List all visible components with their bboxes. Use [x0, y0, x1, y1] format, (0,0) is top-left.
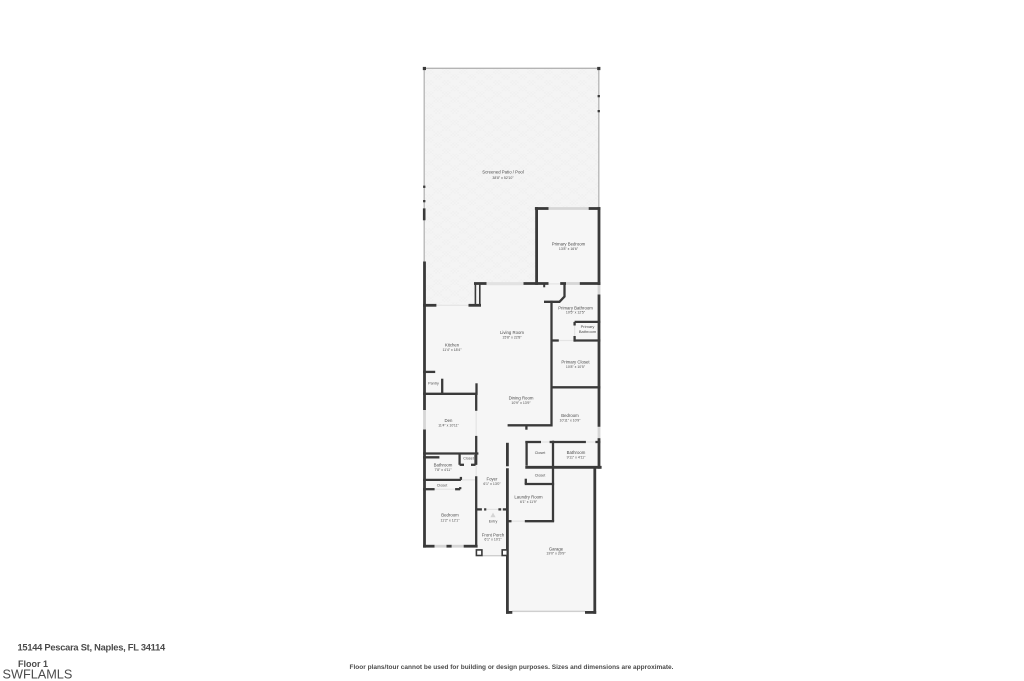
svg-text:Bathroom: Bathroom	[434, 463, 453, 468]
svg-text:6'1" x 10'1": 6'1" x 10'1"	[484, 538, 502, 542]
svg-text:10'11" x 10'9": 10'11" x 10'9"	[560, 419, 582, 423]
svg-text:Dining Room: Dining Room	[509, 396, 534, 401]
svg-text:Closet: Closet	[463, 457, 473, 461]
svg-text:15144 Pescara St, Naples, FL 3: 15144 Pescara St, Naples, FL 34114	[18, 643, 166, 653]
svg-text:10'5" x 12'5": 10'5" x 12'5"	[566, 311, 586, 315]
svg-text:SWFLAMLS: SWFLAMLS	[3, 668, 73, 681]
svg-text:11'2" x 12'1": 11'2" x 12'1"	[441, 519, 461, 523]
svg-text:Primary Closet: Primary Closet	[561, 360, 590, 365]
svg-text:15'8" x 22'8": 15'8" x 22'8"	[502, 336, 522, 340]
svg-text:38'8" x 52'10": 38'8" x 52'10"	[492, 176, 514, 180]
svg-text:Bathroom: Bathroom	[579, 329, 597, 334]
svg-text:Screened Patio / Pool: Screened Patio / Pool	[482, 170, 524, 175]
svg-text:6'1" x 13'0": 6'1" x 13'0"	[483, 482, 501, 486]
svg-text:Primary Bedroom: Primary Bedroom	[552, 242, 586, 247]
svg-text:10'8" x 10'5": 10'8" x 10'5"	[566, 365, 586, 369]
svg-text:13'8" x 16'6": 13'8" x 16'6"	[559, 247, 579, 251]
svg-text:19'0" x 20'9": 19'0" x 20'9"	[546, 552, 566, 556]
svg-text:Living Room: Living Room	[500, 330, 524, 335]
svg-text:Bathroom: Bathroom	[567, 450, 586, 455]
svg-text:Entry: Entry	[489, 520, 498, 524]
svg-text:11'4" x 18'4": 11'4" x 18'4"	[443, 348, 463, 352]
svg-text:Kitchen: Kitchen	[445, 343, 460, 348]
svg-text:10'9" x 13'9": 10'9" x 13'9"	[511, 401, 531, 405]
svg-text:6'1" x 11'9": 6'1" x 11'9"	[520, 500, 538, 504]
svg-text:Closet: Closet	[535, 474, 545, 478]
svg-text:Foyer: Foyer	[487, 477, 499, 482]
svg-text:Bedroom: Bedroom	[441, 513, 459, 518]
svg-text:7'8" x 4'11": 7'8" x 4'11"	[435, 468, 453, 472]
svg-text:Pantry: Pantry	[428, 382, 439, 386]
svg-text:Floor plans/tour cannot be use: Floor plans/tour cannot be used for buil…	[350, 664, 674, 671]
svg-text:11'4" x 10'11": 11'4" x 10'11"	[438, 424, 459, 428]
svg-text:Closet: Closet	[437, 484, 447, 488]
svg-text:Closet: Closet	[535, 451, 545, 455]
svg-text:Bedroom: Bedroom	[561, 413, 579, 418]
svg-text:Laundry Room: Laundry Room	[514, 495, 543, 500]
svg-text:Den: Den	[445, 418, 453, 423]
svg-text:9'11" x 4'11": 9'11" x 4'11"	[567, 456, 586, 460]
